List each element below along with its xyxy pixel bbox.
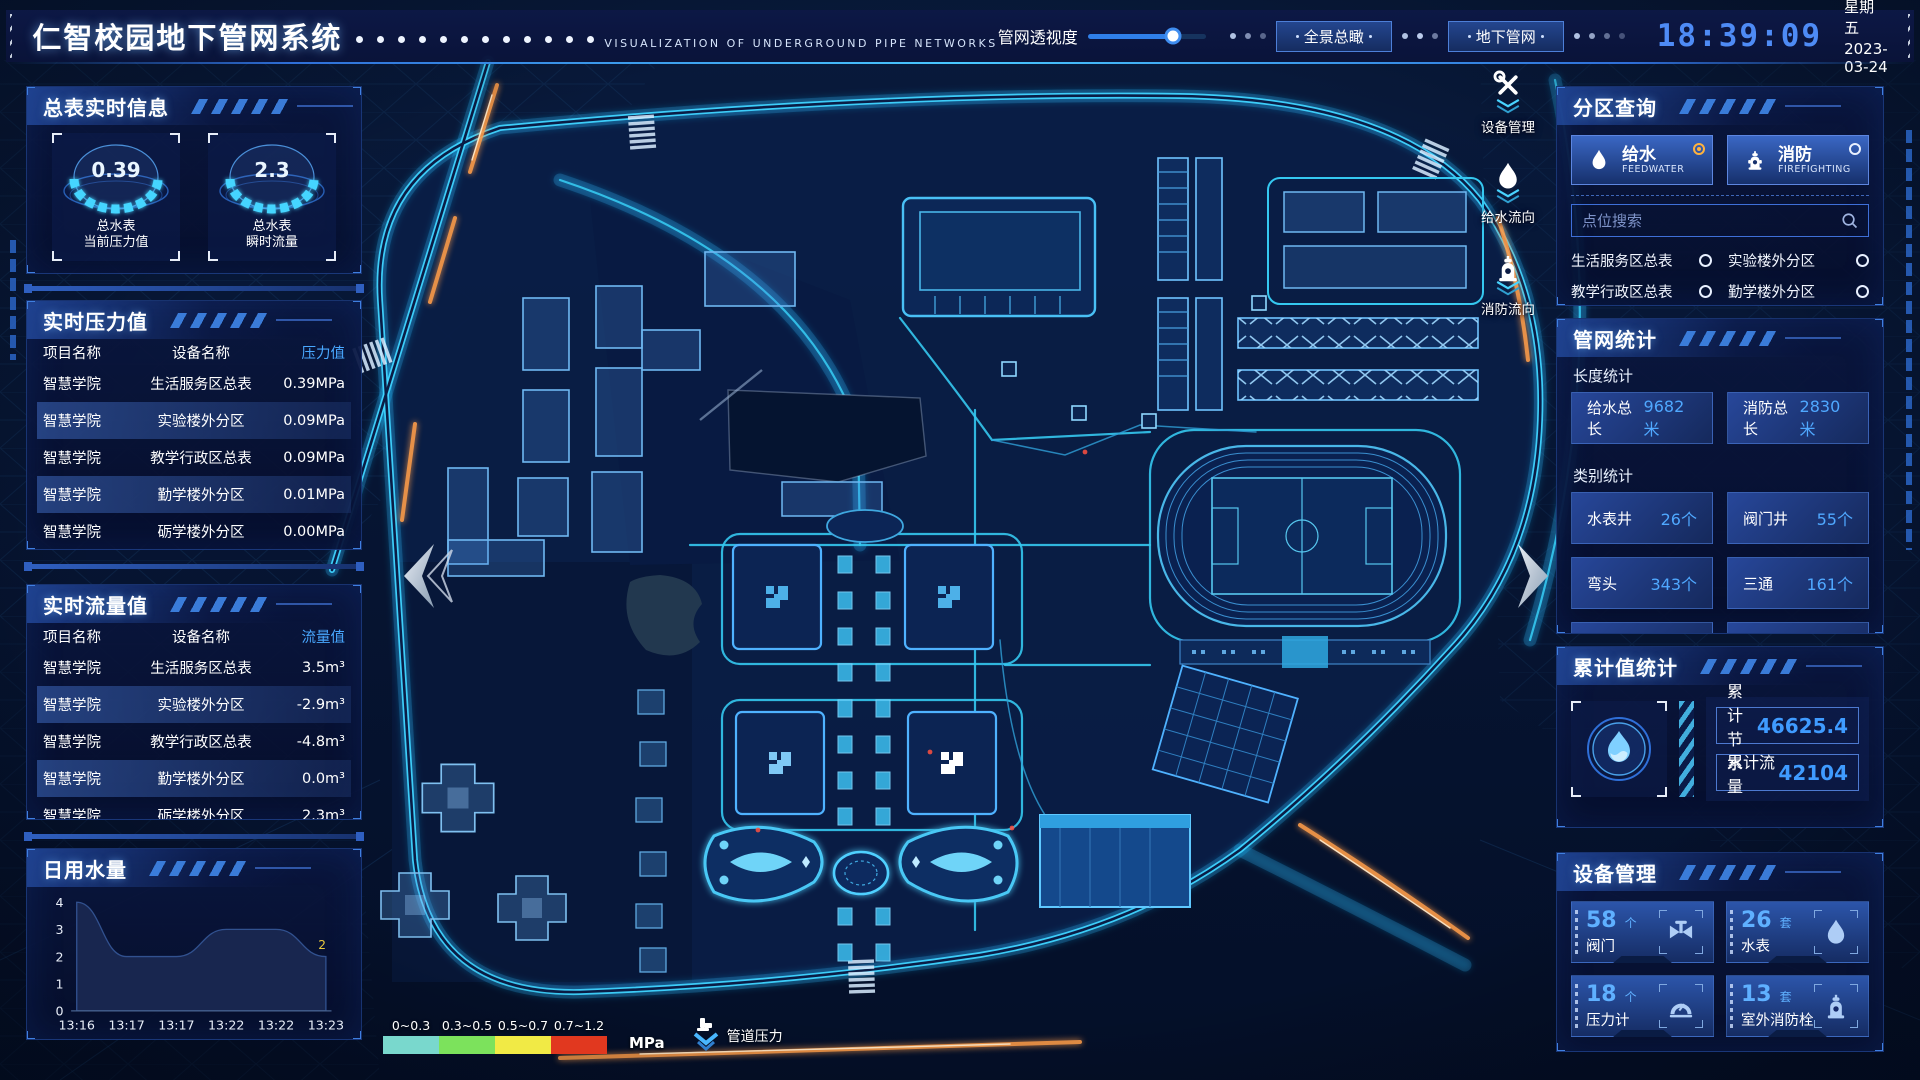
- stat-partial: [1571, 622, 1713, 634]
- svg-text:13:17: 13:17: [108, 1018, 144, 1033]
- radio-unselected-icon: [1699, 285, 1712, 298]
- header-dots: [1574, 33, 1625, 39]
- panel-cumulative: 累计值统计 累计节水46625.4 累计流量42104: [1556, 646, 1884, 828]
- svg-text:13:22: 13:22: [258, 1018, 294, 1033]
- zone-point-item[interactable]: 实验楼外分区: [1728, 245, 1869, 276]
- svg-text:13:22: 13:22: [208, 1018, 244, 1033]
- panel-pipe-stats: 管网统计 长度统计 给水总长9682米 消防总长2830米 类别统计 水表井26…: [1556, 318, 1884, 634]
- title-dots: [356, 36, 594, 43]
- svg-text:2: 2: [318, 938, 326, 952]
- device-card-valves: 58个 阀门: [1571, 901, 1714, 963]
- panel-title: 分区查询: [1573, 92, 1657, 121]
- svg-text:13:16: 13:16: [59, 1018, 95, 1033]
- pressure-table: 项目名称设备名称压力值 智慧学院生活服务区总表0.39MPa 智慧学院实验楼外分…: [27, 339, 361, 550]
- stat-partial: [1727, 622, 1869, 634]
- panel-zone-query: 分区查询 给水FEEDWATER 消防FIREFIGHTING 点位搜索: [1556, 86, 1884, 306]
- gauge-label: 总水表瞬时流量: [246, 219, 298, 251]
- flow-table: 项目名称设备名称流量值 智慧学院生活服务区总表3.5m³ 智慧学院实验楼外分区-…: [27, 623, 361, 820]
- header-bar: 仁智校园地下管网系统 VISUALIZATION OF UNDERGROUND …: [6, 10, 1914, 62]
- pipe-pressure-icon: [691, 1016, 721, 1054]
- panel-device-management: 设备管理 58个 阀门 26套 水表 18个 压力计: [1556, 852, 1884, 1052]
- svg-text:13:17: 13:17: [158, 1018, 194, 1033]
- category-stats-label: 类别统计: [1557, 457, 1883, 492]
- hydrant-icon: [1822, 992, 1850, 1020]
- underground-pipes-button[interactable]: 地下管网: [1448, 21, 1564, 52]
- waterdrop-icon: [1584, 714, 1654, 784]
- radio-unselected-icon: [1699, 254, 1712, 267]
- pressure-gauge-icon: [1667, 992, 1695, 1020]
- waterdrop-icon: [1493, 160, 1523, 192]
- panel-title: 日用水量: [43, 854, 127, 883]
- table-row: 智慧学院勤学楼外分区0.0m³: [37, 760, 351, 797]
- table-row: 智慧学院教学行政区总表0.09MPa: [37, 439, 351, 476]
- pipe-pressure-legend: 0~0.3 0.3~0.5 0.5~0.7 0.7~1.2 MPa 管道压力: [383, 1016, 783, 1054]
- length-stats-label: 长度统计: [1557, 357, 1883, 392]
- panel-title: 总表实时信息: [43, 92, 169, 121]
- radio-selected-icon: [1693, 143, 1705, 155]
- legend-segment: 0.5~0.7: [495, 1018, 551, 1054]
- map-tool-feedwater-flow[interactable]: 给水流向: [1476, 160, 1540, 226]
- app-title: 仁智校园地下管网系统: [32, 15, 342, 57]
- header-right-stripes: [1908, 14, 1910, 58]
- panel-title: 实时压力值: [43, 306, 148, 335]
- daily-water-chart: 4 3 2 1 0 13:16 13:17 13:17 13:22 13:22 …: [29, 891, 353, 1039]
- map-tool-fire-flow[interactable]: 消防流向: [1476, 252, 1540, 318]
- radio-unselected-icon: [1856, 254, 1869, 267]
- panel-title: 实时流量值: [43, 590, 148, 619]
- chevron-down-icon: [1495, 195, 1521, 204]
- panel-title: 设备管理: [1573, 858, 1657, 887]
- table-row: 智慧学院教学行政区总表-4.8m³: [37, 723, 351, 760]
- chevron-down-icon: [1495, 287, 1521, 296]
- flow-gauge: 2.3 总水表瞬时流量: [208, 133, 336, 261]
- cumulative-saved-water: 累计节水46625.4: [1716, 707, 1859, 744]
- point-search-input[interactable]: 点位搜索: [1571, 204, 1869, 237]
- water-meter-icon: [1822, 918, 1850, 946]
- legend-segment: 0.3~0.5: [439, 1018, 495, 1054]
- dashboard: 仁智校园地下管网系统 VISUALIZATION OF UNDERGROUND …: [0, 0, 1920, 1080]
- svg-text:2.3: 2.3: [254, 158, 289, 182]
- waterdrop-icon: [1588, 148, 1610, 172]
- stat-fire-length: 消防总长2830米: [1727, 392, 1869, 444]
- scroll-indicator[interactable]: [1906, 130, 1912, 550]
- panel-realtime-pressure: 实时压力值 项目名称设备名称压力值 智慧学院生活服务区总表0.39MPa 智慧学…: [26, 300, 362, 550]
- device-card-water-meters: 26套 水表: [1726, 901, 1869, 963]
- stat-meter-wells: 水表井26个: [1571, 492, 1713, 544]
- hydrant-icon: [1744, 148, 1766, 172]
- tab-feedwater[interactable]: 给水FEEDWATER: [1571, 135, 1713, 185]
- svg-text:1: 1: [56, 976, 64, 991]
- svg-text:0.39: 0.39: [91, 158, 140, 182]
- table-row: 智慧学院实验楼外分区-2.9m³: [37, 686, 351, 723]
- device-card-hydrants: 13套 室外消防栓: [1726, 975, 1869, 1037]
- clock: 18:39:09: [1657, 18, 1822, 54]
- cumulative-flow: 累计流量42104: [1716, 754, 1859, 791]
- legend-unit: MPa: [629, 1034, 665, 1052]
- radio-unselected-icon: [1856, 285, 1869, 298]
- gauge-dial-icon: 0.39: [56, 133, 176, 219]
- carousel-left-arrow[interactable]: [382, 538, 466, 614]
- device-card-pressure-gauges: 18个 压力计: [1571, 975, 1714, 1037]
- gauge-dial-icon: 2.3: [212, 133, 332, 219]
- table-row: 智慧学院实验楼外分区0.09MPa: [37, 402, 351, 439]
- search-icon: [1841, 212, 1858, 229]
- pressure-gauge: 0.39 总水表当前压力值: [52, 133, 180, 261]
- legend-segment: 0.7~1.2: [551, 1018, 607, 1054]
- pipe-opacity-slider[interactable]: [1088, 34, 1206, 39]
- app-subtitle: VISUALIZATION OF UNDERGROUND PIPE NETWOR…: [604, 37, 997, 50]
- panel-daily-water: 日用水量 4 3 2 1 0 13:16 13:17 13:17 13:22 1…: [26, 848, 362, 1040]
- table-row: 智慧学院勤学楼外分区0.01MPa: [37, 476, 351, 513]
- slider-thumb[interactable]: [1164, 28, 1181, 45]
- table-row: 智慧学院砺学楼外分区2.3m³: [37, 797, 351, 820]
- zone-point-item[interactable]: 教学行政区总表: [1571, 276, 1712, 306]
- svg-text:3: 3: [56, 922, 64, 937]
- valve-icon: [1667, 918, 1695, 946]
- date: 2023-03-24: [1844, 40, 1888, 76]
- stat-feedwater-length: 给水总长9682米: [1571, 392, 1713, 444]
- radio-unselected-icon: [1849, 143, 1861, 155]
- header-left-stripes: [10, 14, 12, 58]
- stat-valve-wells: 阀门井55个: [1727, 492, 1869, 544]
- svg-text:13:23: 13:23: [308, 1018, 344, 1033]
- header-dots: [1402, 33, 1438, 39]
- weekday: 星期五: [1844, 0, 1888, 38]
- panel-title: 管网统计: [1573, 324, 1657, 353]
- stat-elbows: 弯头343个: [1571, 557, 1713, 609]
- zone-point-item[interactable]: 生活服务区总表: [1571, 245, 1712, 276]
- legend-segment: 0~0.3: [383, 1018, 439, 1054]
- header-dots: [1230, 33, 1266, 39]
- panel-realtime-flow: 实时流量值 项目名称设备名称流量值 智慧学院生活服务区总表3.5m³ 智慧学院实…: [26, 584, 362, 820]
- zone-point-item[interactable]: 勤学楼外分区: [1728, 276, 1869, 306]
- zone-point-list: 生活服务区总表 实验楼外分区 教学行政区总表 勤学楼外分区 砺学楼外分区 宿舍区…: [1557, 245, 1883, 306]
- svg-text:2: 2: [56, 949, 64, 964]
- table-row: 智慧学院砺学楼外分区0.00MPa: [37, 513, 351, 550]
- hydrant-icon: [1493, 252, 1523, 284]
- table-row: 智慧学院生活服务区总表0.39MPa: [37, 365, 351, 402]
- left-edge-ticks: [10, 240, 16, 360]
- svg-text:0: 0: [56, 1004, 64, 1019]
- chevron-down-icon: [1495, 105, 1521, 114]
- tab-firefighting[interactable]: 消防FIREFIGHTING: [1727, 135, 1869, 185]
- table-row: 智慧学院生活服务区总表3.5m³: [37, 649, 351, 686]
- svg-text:4: 4: [56, 895, 64, 910]
- cumulative-water-icon-frame: [1571, 701, 1667, 797]
- panel-meter-info: 总表实时信息 0.39 总水表当前压力值: [26, 86, 362, 274]
- wrench-icon: [1491, 68, 1525, 102]
- gauge-label: 总水表当前压力值: [83, 219, 148, 251]
- map-tool-device-management[interactable]: 设备管理: [1476, 68, 1540, 136]
- striped-divider: [1679, 701, 1694, 797]
- pipe-opacity-label: 管网透视度: [998, 24, 1078, 48]
- overview-button[interactable]: 全景总瞰: [1276, 21, 1392, 52]
- panel-title: 累计值统计: [1573, 652, 1678, 681]
- legend-label: 管道压力: [727, 1026, 783, 1046]
- stat-tees: 三通161个: [1727, 557, 1869, 609]
